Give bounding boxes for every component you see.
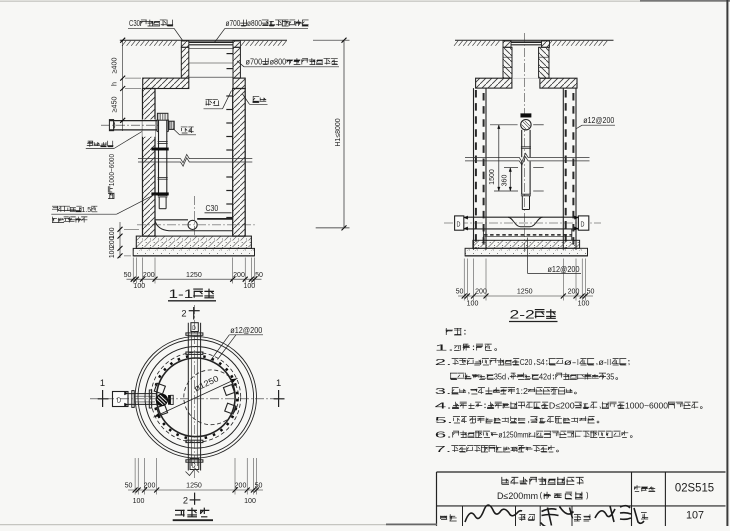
svg-text:≥450: ≥450 <box>110 96 119 112</box>
svg-text:35: 35 <box>606 372 614 382</box>
svg-text:50: 50 <box>255 481 263 490</box>
svg-text:1000~6000: 1000~6000 <box>107 154 116 186</box>
svg-text:2: 2 <box>181 309 186 320</box>
svg-text:1.5: 1.5 <box>81 205 91 214</box>
svg-text:200: 200 <box>143 270 155 279</box>
svg-text:1000~6000: 1000~6000 <box>625 401 668 411</box>
svg-text:1:2: 1:2 <box>515 386 528 396</box>
svg-text:107: 107 <box>686 510 704 522</box>
svg-text:ø12@200: ø12@200 <box>230 326 262 335</box>
svg-text:ø-: ø- <box>598 357 607 367</box>
svg-text:200: 200 <box>568 287 580 296</box>
svg-text:ø12@200: ø12@200 <box>548 265 580 274</box>
svg-text:ø800: ø800 <box>270 58 287 67</box>
svg-text:1.: 1. <box>435 343 454 353</box>
svg-text:2.: 2. <box>435 357 452 367</box>
svg-text:1: 1 <box>100 378 105 389</box>
svg-text:6.: 6. <box>435 430 452 440</box>
svg-text:ø800: ø800 <box>247 19 262 28</box>
svg-text:200: 200 <box>233 270 245 279</box>
svg-text:200: 200 <box>475 287 487 296</box>
svg-text:S4: S4 <box>536 357 545 367</box>
svg-text:100: 100 <box>244 496 256 505</box>
svg-text:D: D <box>457 220 461 229</box>
svg-text:50: 50 <box>124 270 132 279</box>
svg-text:50: 50 <box>587 287 595 296</box>
svg-text:D≤200: D≤200 <box>549 401 575 411</box>
svg-text:D: D <box>192 325 196 332</box>
svg-text:H1≤8000: H1≤8000 <box>333 118 342 146</box>
svg-text:2-2: 2-2 <box>510 309 535 321</box>
svg-text:ø12@200: ø12@200 <box>583 116 614 125</box>
svg-text:200: 200 <box>144 481 156 490</box>
svg-text:C30: C30 <box>206 204 219 213</box>
svg-text:ø-: ø- <box>564 357 577 367</box>
svg-text:h: h <box>110 82 119 86</box>
svg-text:1: 1 <box>276 378 281 389</box>
svg-text:1-1: 1-1 <box>169 289 194 301</box>
svg-text:1250: 1250 <box>517 287 533 296</box>
svg-text:50: 50 <box>125 481 133 490</box>
svg-text:50: 50 <box>255 270 263 279</box>
svg-text:100: 100 <box>467 299 479 308</box>
svg-text:1250: 1250 <box>186 481 202 490</box>
svg-text:42d: 42d <box>539 372 551 382</box>
svg-text:D: D <box>117 396 122 405</box>
svg-text:02S515: 02S515 <box>675 481 715 495</box>
svg-text:4.: 4. <box>435 401 452 411</box>
svg-text:D: D <box>581 220 585 229</box>
svg-text:7.: 7. <box>435 444 452 454</box>
svg-text:2: 2 <box>183 496 188 507</box>
svg-text:100: 100 <box>243 281 255 290</box>
svg-text:C20: C20 <box>520 357 533 367</box>
svg-text:100: 100 <box>133 281 145 290</box>
svg-text:D≤200mm: D≤200mm <box>497 491 538 501</box>
svg-text:50: 50 <box>456 287 464 296</box>
svg-text:ø700: ø700 <box>226 19 241 28</box>
svg-text:C30: C30 <box>129 19 140 28</box>
svg-text:200: 200 <box>235 481 247 490</box>
svg-text:3.: 3. <box>435 386 452 396</box>
svg-text:100: 100 <box>133 496 145 505</box>
svg-text:200: 200 <box>109 236 116 248</box>
svg-text:ø700: ø700 <box>246 58 263 67</box>
svg-text:360: 360 <box>500 175 509 187</box>
svg-text:100: 100 <box>578 299 590 308</box>
svg-text:100: 100 <box>109 247 116 259</box>
svg-text:1250: 1250 <box>186 270 202 279</box>
svg-text:1500: 1500 <box>487 169 496 185</box>
svg-text:≥400: ≥400 <box>110 57 119 73</box>
svg-text:5.: 5. <box>435 415 453 425</box>
svg-text:ø1250mm: ø1250mm <box>498 430 528 440</box>
svg-text:35d: 35d <box>494 372 506 382</box>
